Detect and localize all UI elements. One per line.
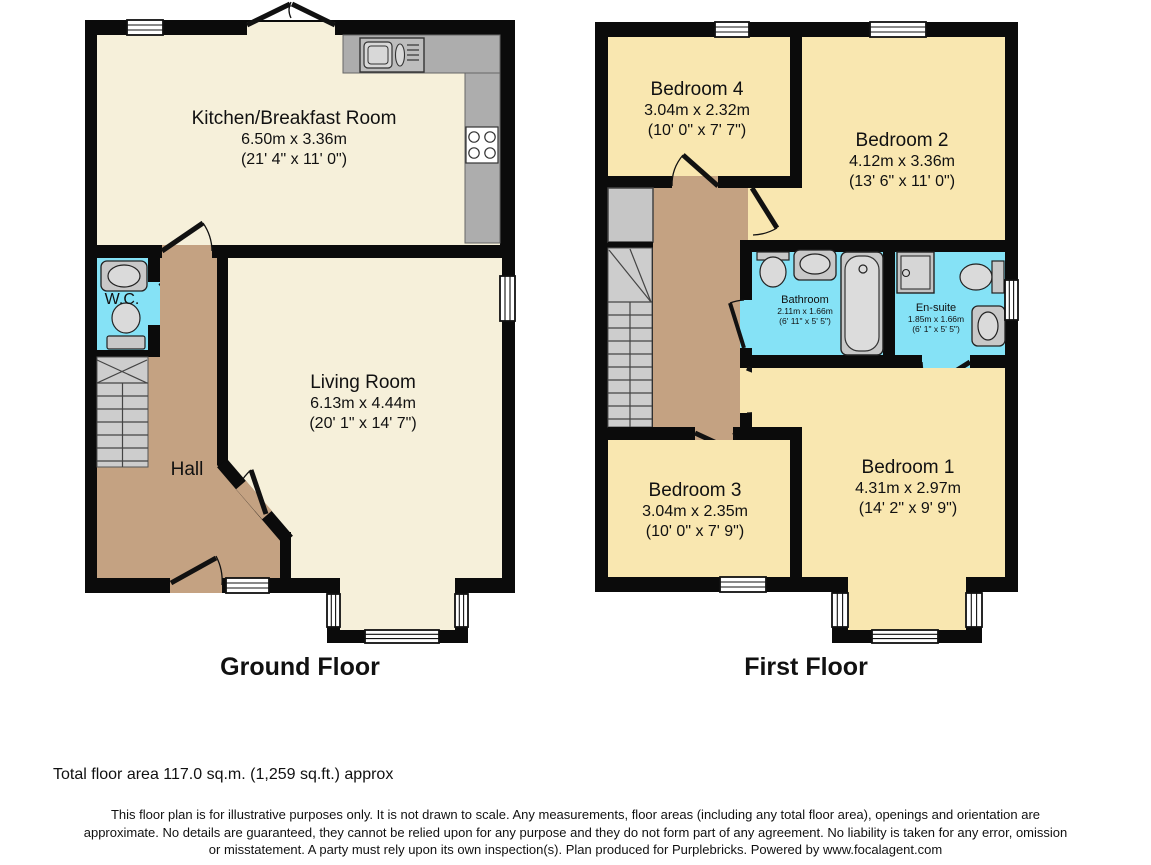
- living-name: Living Room: [309, 372, 416, 394]
- disclaimer-text: This floor plan is for illustrative purp…: [0, 806, 1151, 859]
- gf-window-top: [127, 20, 163, 35]
- cupboard-wall: [608, 242, 653, 248]
- bedroom1-dims-ft: (14' 2" x 9' 9"): [855, 499, 961, 519]
- french-door-opening: [247, 22, 335, 35]
- kitchen-dims-m: 6.50m x 3.36m: [192, 130, 397, 150]
- gf-window-bottom: [226, 578, 269, 593]
- bedroom3-label: Bedroom 3 3.04m x 2.35m (10' 0" x 7' 9"): [642, 480, 748, 542]
- bathroom-ensuite-wall: [883, 252, 895, 355]
- bedroom4-label: Bedroom 4 3.04m x 2.32m (10' 0" x 7' 7"): [644, 79, 750, 141]
- living-dims-ft: (20' 1" x 14' 7"): [309, 414, 416, 434]
- bedroom4-name: Bedroom 4: [644, 79, 750, 101]
- bathroom-basin-icon: [794, 250, 836, 280]
- ff-window-bed4: [715, 22, 749, 37]
- kitchen-hob-icon: [466, 127, 498, 163]
- ensuite-label: En-suite 1.85m x 1.66m (6' 1" x 5' 5"): [908, 302, 964, 334]
- ensuite-toilet-icon: [960, 261, 1004, 293]
- ff-window-bed2: [870, 22, 926, 37]
- disclaimer-line-3: or misstatement. A party must rely upon …: [0, 841, 1151, 859]
- gf-bay-window-left: [327, 594, 340, 627]
- bathroom-dims-ft: (6' 11" x 5' 5"): [777, 317, 833, 327]
- ff-window-bed3: [720, 577, 766, 592]
- ff-bay-window-left: [832, 593, 848, 627]
- kitchen-dims-ft: (21' 4" x 11' 0"): [192, 150, 397, 170]
- bedroom4-dims-m: 3.04m x 2.32m: [644, 101, 750, 121]
- kitchen-label: Kitchen/Breakfast Room 6.50m x 3.36m (21…: [192, 108, 397, 170]
- bedroom2-label: Bedroom 2 4.12m x 3.36m (13' 6" x 11' 0"…: [849, 130, 955, 192]
- ff-bay-window-bottom: [872, 630, 938, 643]
- bedroom3-name: Bedroom 3: [642, 480, 748, 502]
- shower-icon: [897, 252, 934, 293]
- wc-bottom-wall: [96, 350, 160, 357]
- living-bay-area: [340, 570, 455, 630]
- landing-cupboard: [608, 188, 653, 242]
- gf-bay-window-bottom: [365, 630, 439, 643]
- bedroom2-dims-m: 4.12m x 3.36m: [849, 152, 955, 172]
- disclaimer-line-1: This floor plan is for illustrative purp…: [0, 806, 1151, 824]
- bedroom1-door-opening: [740, 368, 752, 413]
- wc-basin-icon: [101, 261, 147, 291]
- bedroom1-bay-area: [848, 570, 966, 630]
- bedroom1-label: Bedroom 1 4.31m x 2.97m (14' 2" x 9' 9"): [855, 457, 961, 519]
- bathroom-label: Bathroom 2.11m x 1.66m (6' 11" x 5' 5"): [777, 294, 833, 326]
- bedroom3-dims-ft: (10' 0" x 7' 9"): [642, 522, 748, 542]
- kitchen-sink-icon: [360, 38, 424, 72]
- wc-label: W.C.: [105, 291, 140, 309]
- bedroom1-dims-m: 4.31m x 2.97m: [855, 479, 961, 499]
- living-label: Living Room 6.13m x 4.44m (20' 1" x 14' …: [309, 372, 416, 434]
- bedroom3-dims-m: 3.04m x 2.35m: [642, 502, 748, 522]
- ground-floor-title: Ground Floor: [220, 653, 380, 682]
- kitchen-name: Kitchen/Breakfast Room: [192, 108, 397, 130]
- bedroom2-name: Bedroom 2: [849, 130, 955, 152]
- kitchen-hall-wall: [97, 245, 500, 258]
- gf-stairs: [97, 357, 148, 467]
- hall-living-wall: [217, 258, 228, 465]
- bathroom-top-wall: [748, 240, 1005, 252]
- ground-floor-plan: [85, 2, 515, 643]
- ensuite-basin-icon: [972, 306, 1005, 346]
- total-floor-area: Total floor area 117.0 sq.m. (1,259 sq.f…: [53, 766, 393, 784]
- ff-window-ensuite: [1005, 280, 1018, 320]
- living-dims-m: 6.13m x 4.44m: [309, 394, 416, 414]
- ff-bay-window-right: [966, 593, 982, 627]
- gf-window-right: [500, 276, 515, 321]
- bedroom3-bedroom1-wall: [790, 427, 802, 577]
- bedroom4-dims-ft: (10' 0" x 7' 7"): [644, 121, 750, 141]
- first-floor-title: First Floor: [744, 653, 868, 682]
- floorplan-page: Kitchen/Breakfast Room 6.50m x 3.36m (21…: [0, 0, 1151, 865]
- wc-door-opening: [148, 282, 160, 325]
- hall-living-lower-wall: [280, 532, 291, 578]
- landing-area: [653, 188, 748, 427]
- bedroom2-dims-ft: (13' 6" x 11' 0"): [849, 172, 955, 192]
- disclaimer-line-2: approximate. No details are guaranteed, …: [0, 824, 1151, 842]
- ensuite-dims-ft: (6' 1" x 5' 5"): [908, 325, 964, 335]
- floorplan-canvas: [0, 0, 1151, 865]
- bathtub-icon: [841, 252, 883, 355]
- bedroom1-name: Bedroom 1: [855, 457, 961, 479]
- gf-bay-window-right: [455, 594, 468, 627]
- bedroom4-bedroom2-wall: [790, 37, 802, 188]
- ff-stairs: [608, 248, 652, 427]
- hall-label: Hall: [171, 459, 204, 481]
